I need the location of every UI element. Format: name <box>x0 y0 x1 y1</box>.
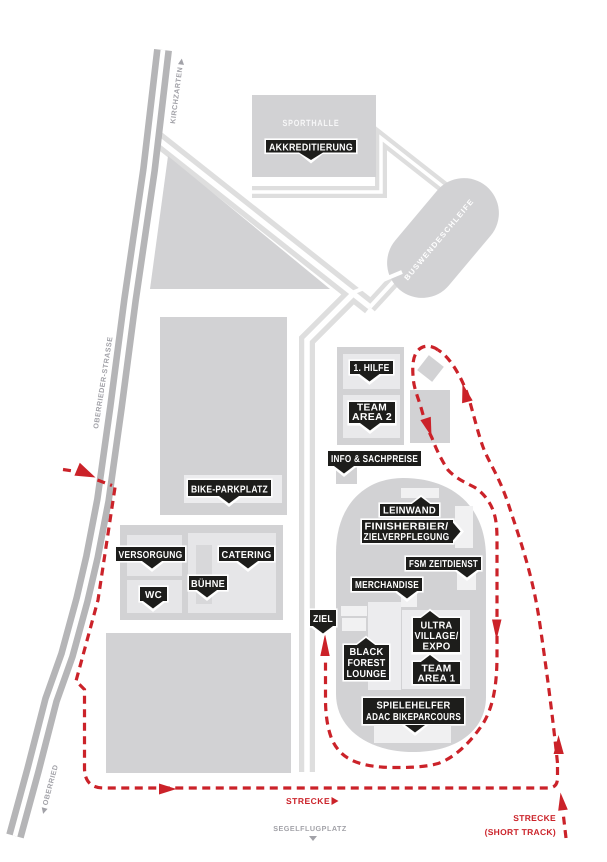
svg-text:(SHORT TRACK): (SHORT TRACK) <box>485 827 556 837</box>
svg-text:ADAC BIKEPARCOURS: ADAC BIKEPARCOURS <box>366 712 461 723</box>
svg-text:LEINWAND: LEINWAND <box>383 506 436 517</box>
svg-text:BÜHNE: BÜHNE <box>191 578 225 590</box>
svg-text:LOUNGE: LOUNGE <box>347 669 387 680</box>
svg-text:SPIELEHELFER: SPIELEHELFER <box>377 701 451 712</box>
svg-text:ZIELVERPFLEGUNG: ZIELVERPFLEGUNG <box>364 532 450 543</box>
svg-text:EXPO: EXPO <box>423 642 451 653</box>
svg-text:AKKREDITIERUNG: AKKREDITIERUNG <box>269 143 353 154</box>
svg-text:SPORTHALLE: SPORTHALLE <box>283 118 340 128</box>
svg-text:AREA 2: AREA 2 <box>352 412 392 423</box>
svg-text:INFO & SACHPREISE: INFO & SACHPREISE <box>331 454 418 465</box>
svg-text:AREA 1: AREA 1 <box>418 674 456 685</box>
svg-text:WC: WC <box>145 590 162 601</box>
svg-text:ZIEL: ZIEL <box>313 614 333 625</box>
svg-text:CATERING: CATERING <box>222 550 272 561</box>
svg-text:BLACK: BLACK <box>350 647 384 658</box>
svg-text:STRECKE: STRECKE <box>286 796 330 806</box>
svg-text:BIKE-PARKPLATZ: BIKE-PARKPLATZ <box>191 485 268 496</box>
svg-text:FOREST: FOREST <box>348 658 386 669</box>
svg-text:VERSORGUNG: VERSORGUNG <box>119 550 183 561</box>
svg-text:VILLAGE/: VILLAGE/ <box>415 631 459 642</box>
svg-text:ULTRA: ULTRA <box>421 621 453 632</box>
svg-text:FSM ZEITDIENST: FSM ZEITDIENST <box>409 559 478 570</box>
svg-text:STRECKE: STRECKE <box>513 813 556 823</box>
svg-text:1. HILFE: 1. HILFE <box>354 363 390 374</box>
svg-text:SEGELFLUGPLATZ: SEGELFLUGPLATZ <box>273 824 347 833</box>
svg-text:MERCHANDISE: MERCHANDISE <box>355 580 419 591</box>
svg-text:FINISHERBIER/: FINISHERBIER/ <box>365 522 449 533</box>
